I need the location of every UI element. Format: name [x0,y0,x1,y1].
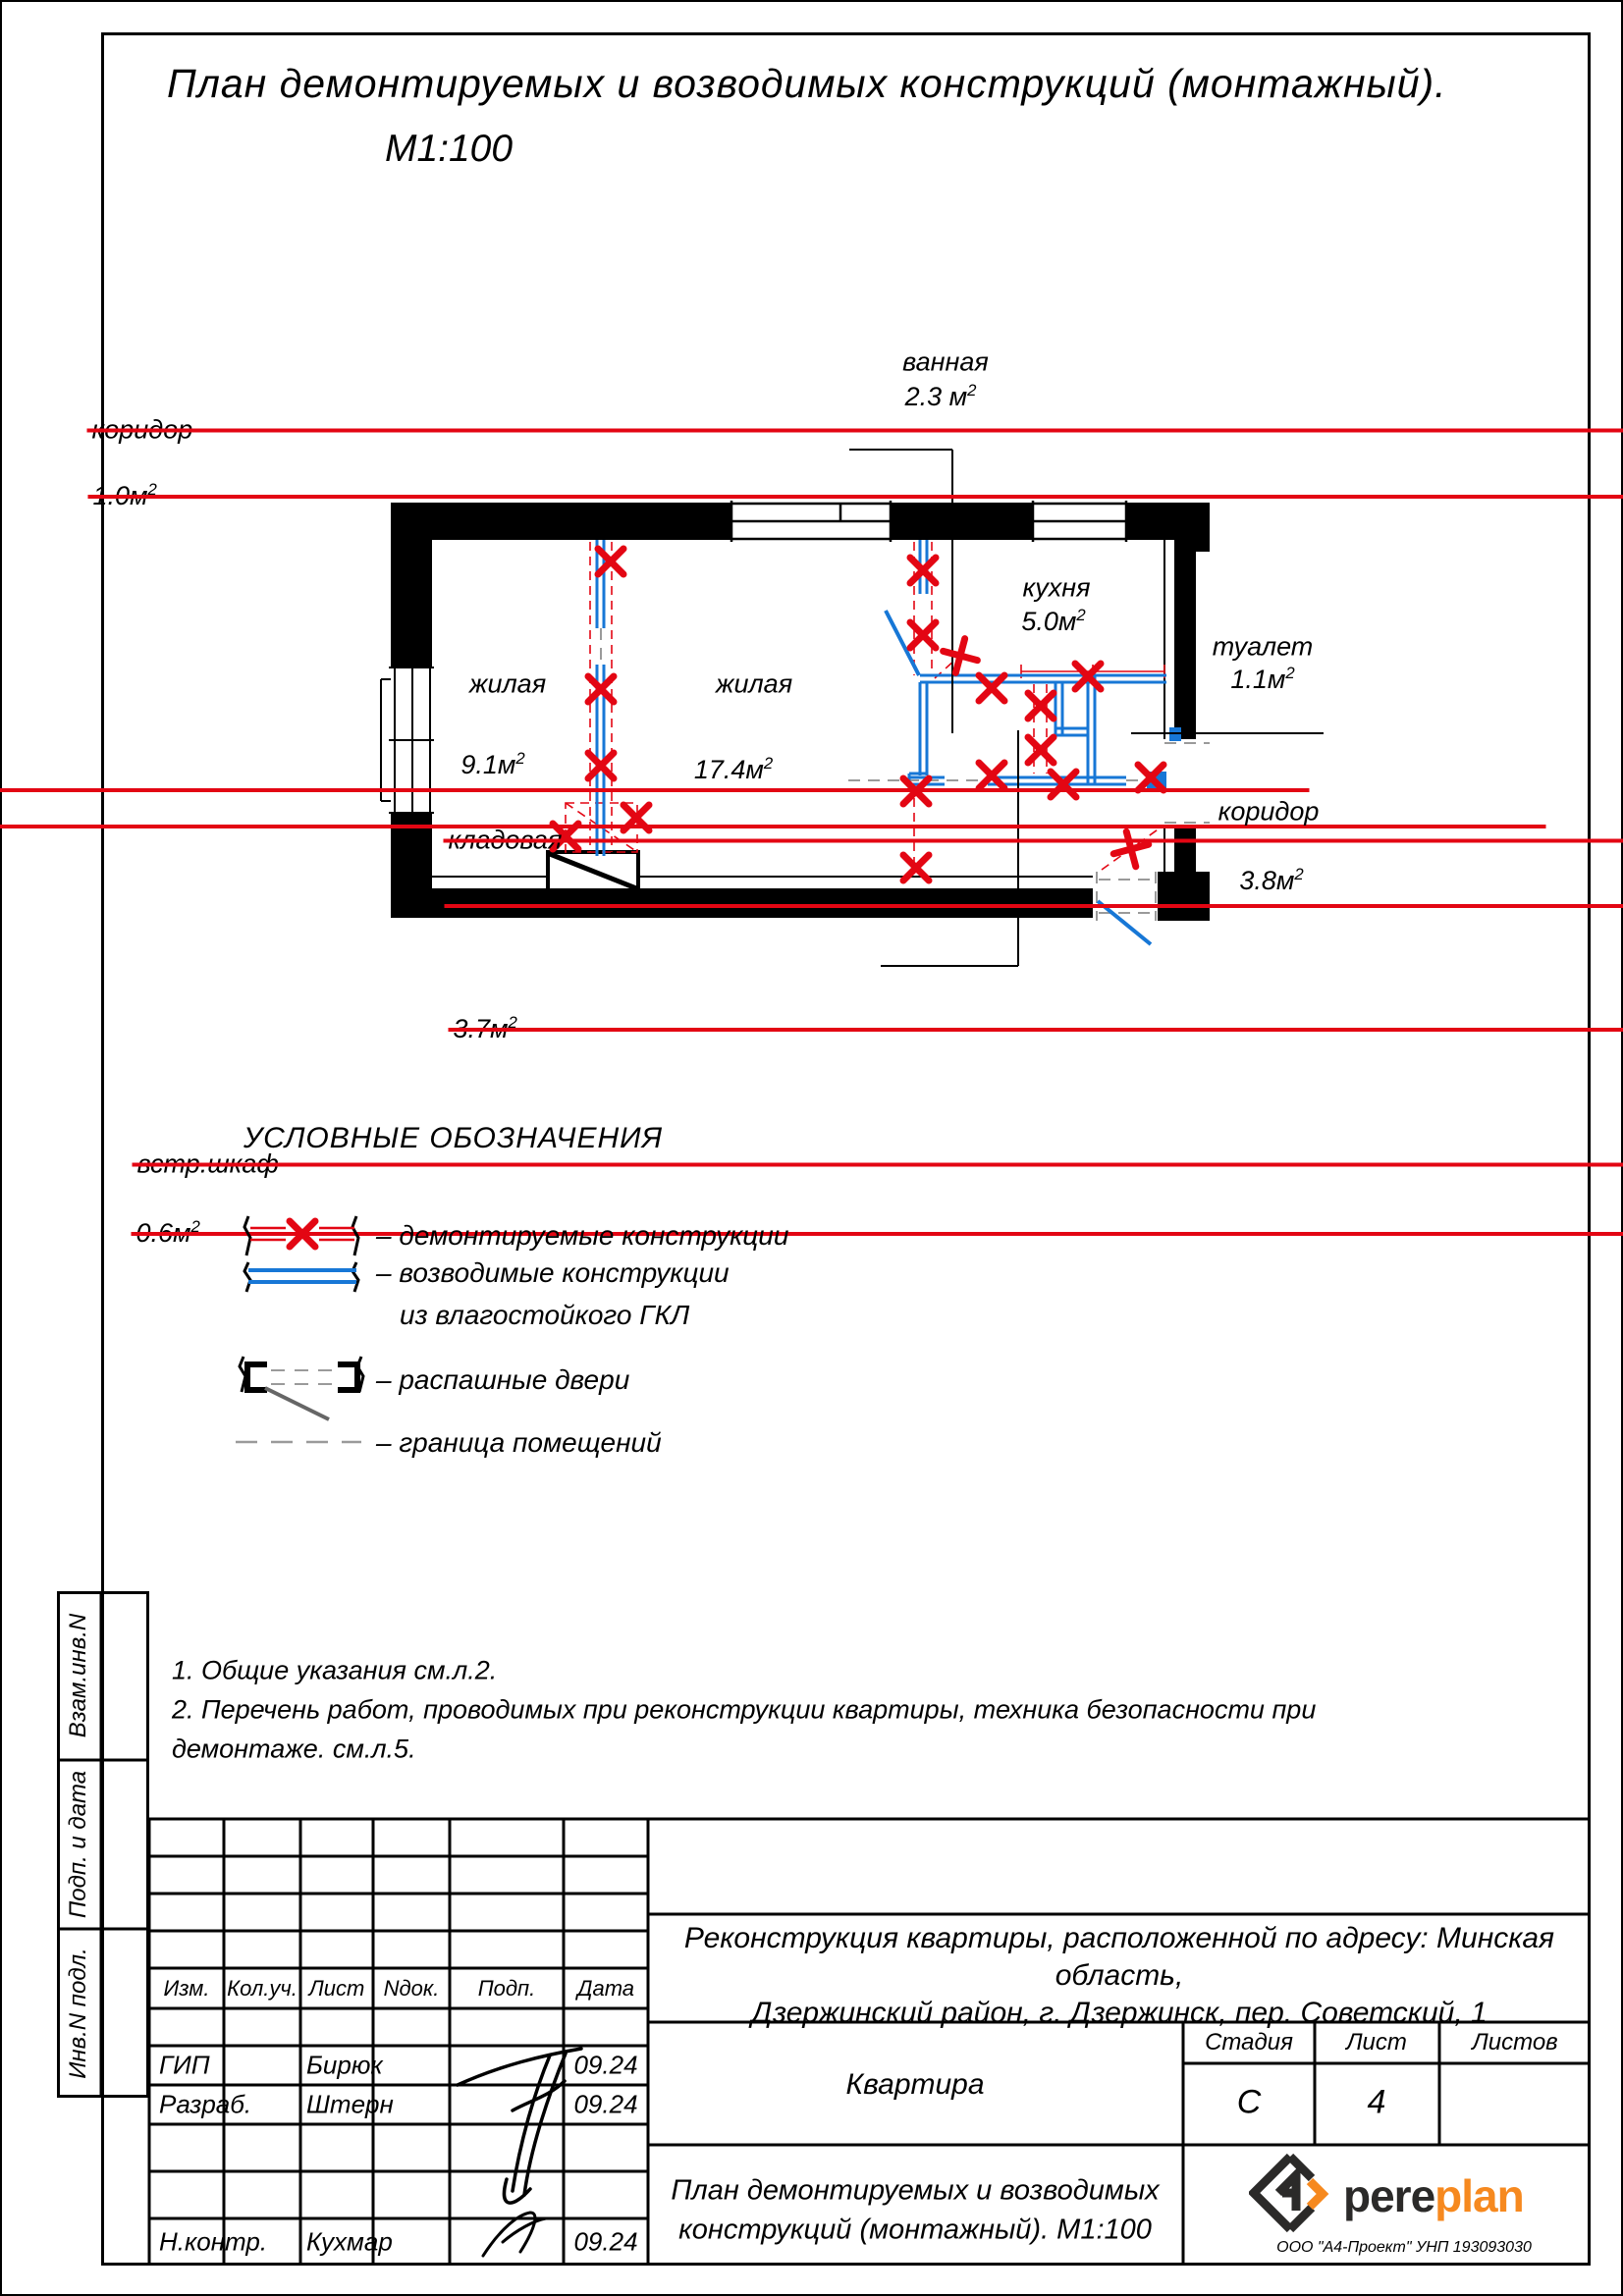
tb-doc-title-line1: План демонтируемых и возводимых [671,2175,1159,2208]
legend-symbol-new-walls [239,1260,366,1294]
room-label-corridor-top-struck: коридор [92,415,1623,446]
tb-sheet-value: 4 [1368,2084,1386,2122]
tb-stage-label: Стадия [1205,2029,1293,2056]
legend-item-doors: – распашные двери [376,1364,629,1396]
legend-item-demolition: – демонтируемые конструкции [376,1220,788,1252]
room-area-storeroom-struck: 1.9м2 [450,889,1623,921]
room-area-toilet: 1.1м2 [1230,664,1294,695]
room-label-living1: жилая [469,669,546,700]
tb-role-gip: ГИП [159,2051,210,2081]
tb-col-izm: Изм. [164,1976,210,2002]
tb-role-ncontrol: Н.контр. [159,2227,267,2258]
tb-stage-value: С [1237,2084,1262,2122]
room-area-bathroom: 2.3 м2 [905,381,977,412]
pereplan-word-dark: pere [1343,2170,1434,2221]
room-area-corridor-right-old: 3.7м2 [454,1013,1623,1044]
room-area-living2-new: 17.4м2 [694,754,773,785]
project-address: Реконструкция квартиры, расположенной по… [650,1920,1589,2032]
tb-date-razrab: 09.24 [573,2090,637,2120]
legend-heading: УСЛОВНЫЕ ОБОЗНАЧЕНИЯ [243,1122,663,1155]
tb-col-podp: Подп. [478,1976,536,2002]
room-label-kitchen: кухня [1022,573,1090,604]
legend-symbol-doors [236,1353,383,1423]
tb-name-ncontrol: Кухмар [306,2227,393,2258]
sidebar-label-vzam-inv: Взам.инв.N [65,1614,92,1737]
pereplan-logo-icon [1249,2152,1347,2236]
room-area-corridor-top-struck: 1.0м2 [93,480,1623,511]
page-title: План демонтируемых и возводимых конструк… [167,61,1434,107]
sidebar-label-podp-data: Подп. и дата [65,1771,92,1918]
room-area-living1-old: 9.2м2 [0,774,1305,805]
room-area-kitchen: 5.0м2 [1021,606,1085,637]
tb-col-list: Лист [309,1976,365,2002]
tb-col-koluch: Кол.уч. [227,1976,298,2002]
tb-doc-title-line2: конструкций (монтажный). М1:100 [678,2215,1152,2247]
tb-object: Квартира [845,2068,984,2102]
room-area-living1-new: 9.1м2 [460,749,524,780]
project-address-line2: Дзержинский район, г. Дзержинск, пер. Со… [650,1995,1589,2032]
room-area-corridor-right-new: 3.8м2 [1239,865,1303,896]
balcony-door [548,852,638,890]
tb-name-gip: Бирюк [306,2051,383,2081]
room-label-storeroom-struck: кладовая [449,826,1623,856]
tb-col-ndok: Nдок. [384,1976,440,2002]
room-label-living2: жилая [716,669,792,700]
tb-role-razrab: Разраб. [159,2090,251,2120]
page-scale: М1:100 [365,128,532,171]
legend-item-new-walls-line2: из влагостойкого ГКЛ [400,1300,689,1331]
tb-date-ncontrol: 09.24 [573,2227,637,2258]
room-label-bathroom: ванная [902,347,989,378]
tb-sheets-label: Листов [1472,2029,1557,2056]
room-label-toilet: туалет [1213,632,1314,663]
tb-col-data: Дата [577,1976,634,2002]
new-walls [597,540,1181,856]
sidebar-label-inv-podl: Инв.N подл. [65,1948,92,2079]
drawing-sheet: План демонтируемых и возводимых конструк… [0,0,1623,2296]
legend-item-boundary: – граница помещений [376,1427,662,1459]
legend-symbol-boundary [234,1433,363,1451]
pereplan-word-accent: plan [1434,2170,1524,2221]
tb-date-gip: 09.24 [573,2051,637,2081]
room-label-corridor-right: коридор [1218,797,1320,828]
tb-name-razrab: Штерн [306,2090,394,2120]
legend-symbol-demolition [239,1214,366,1257]
company-info: ООО "А4-Проект" УНП 193093030 [1276,2239,1532,2257]
tb-sheet-label: Лист [1346,2029,1407,2056]
project-address-line1: Реконструкция квартиры, расположенной по… [650,1920,1589,1995]
pereplan-wordmark: pereplan [1343,2169,1524,2222]
legend-item-new-walls-line1: – возводимые конструкции [376,1257,730,1289]
